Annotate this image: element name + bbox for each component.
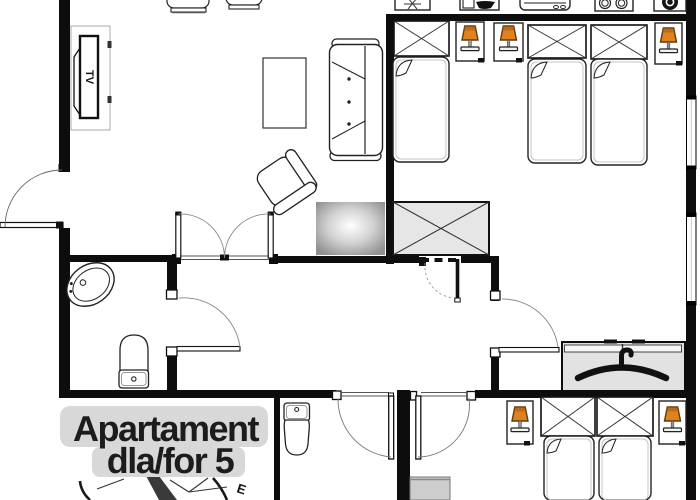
svg-text:TV: TV [83,70,95,85]
svg-text:dla/for 5: dla/for 5 [107,440,235,481]
